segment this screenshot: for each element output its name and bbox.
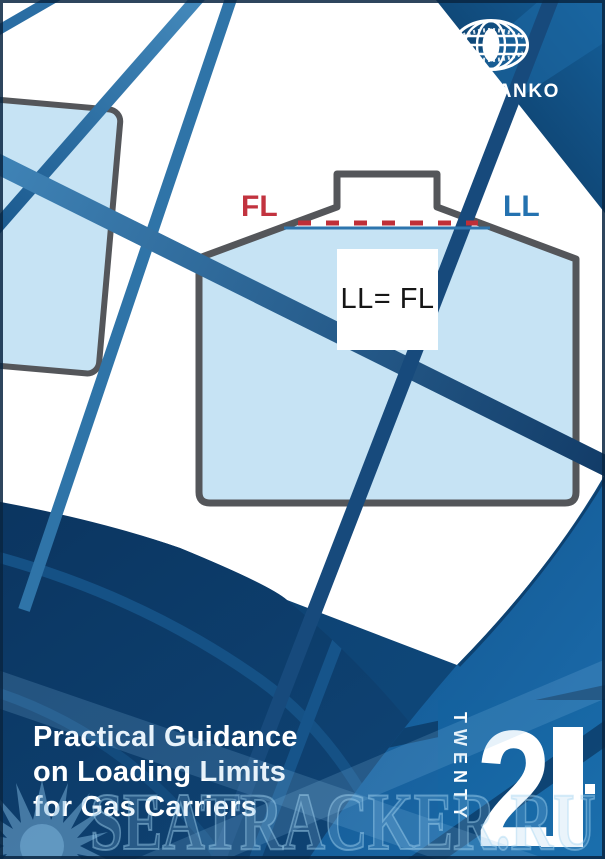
numeral-one-bar: 1 [553, 727, 583, 847]
numeral-one-foot [541, 836, 554, 847]
equation-box: LL= FL [337, 249, 438, 350]
title-line-3: for Gas Carriers [33, 790, 298, 825]
year-badge-word: TWENTY [450, 712, 470, 824]
publisher-logo: INTERTANKO [408, 16, 573, 103]
numeral-one-dot [585, 784, 595, 794]
book-cover: TWENTY 2 1 INTERTANKO FL LL LL= FL Pract… [0, 0, 605, 859]
title-line-2: on Loading Limits [33, 755, 298, 790]
year-badge-digit-two: 2 [476, 697, 552, 859]
loading-limit-label: LL [503, 190, 540, 224]
filling-limit-label: FL [241, 190, 278, 224]
cover-title: Practical Guidance on Loading Limits for… [33, 720, 298, 825]
equation-text: LL= FL [340, 283, 434, 316]
small-tank-diagram [0, 96, 121, 374]
globe-icon [451, 16, 531, 74]
title-line-1: Practical Guidance [33, 720, 298, 755]
publisher-name: INTERTANKO [408, 81, 573, 103]
